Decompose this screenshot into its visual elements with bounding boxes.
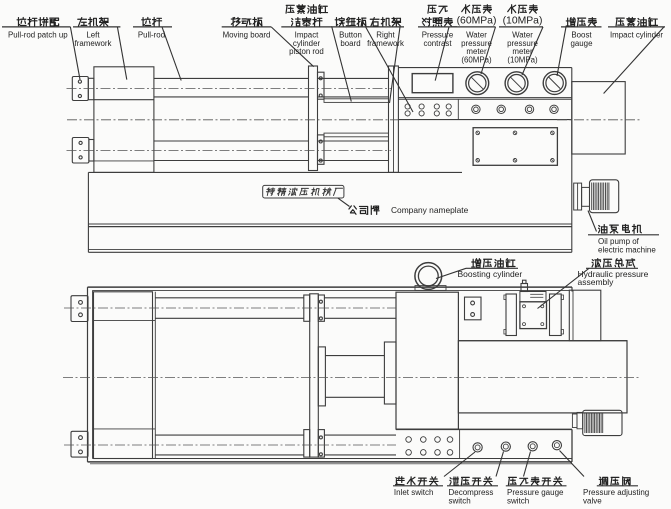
svg-text:framework: framework <box>367 39 404 48</box>
svg-text:(60MPa): (60MPa) <box>457 16 497 27</box>
svg-text:Inlet switch: Inlet switch <box>394 488 434 497</box>
svg-text:Oil pump of: Oil pump of <box>598 237 640 246</box>
svg-text:valve: valve <box>583 497 602 506</box>
svg-text:piston rod: piston rod <box>289 47 324 56</box>
svg-text:Impact cylinder: Impact cylinder <box>610 31 663 40</box>
svg-text:framework: framework <box>75 39 112 48</box>
svg-text:electric machine: electric machine <box>598 246 656 255</box>
svg-text:gauge: gauge <box>571 39 594 48</box>
svg-text:Boosting cylinder: Boosting cylinder <box>458 269 523 279</box>
svg-text:Moving board: Moving board <box>223 31 271 40</box>
svg-text:Pull-rod: Pull-rod <box>138 31 165 40</box>
svg-text:(10MPa): (10MPa) <box>507 56 538 65</box>
svg-text:switch: switch <box>507 497 529 506</box>
svg-text:(10MPa): (10MPa) <box>503 16 543 27</box>
svg-text:Pull-rod patch up: Pull-rod patch up <box>8 31 68 40</box>
svg-text:Company nameplate: Company nameplate <box>391 205 469 215</box>
svg-text:contrast: contrast <box>423 39 452 48</box>
svg-text:assembly: assembly <box>578 277 615 287</box>
svg-text:(60MPa): (60MPa) <box>461 56 492 65</box>
svg-text:board: board <box>340 39 360 48</box>
svg-text:switch: switch <box>449 497 471 506</box>
